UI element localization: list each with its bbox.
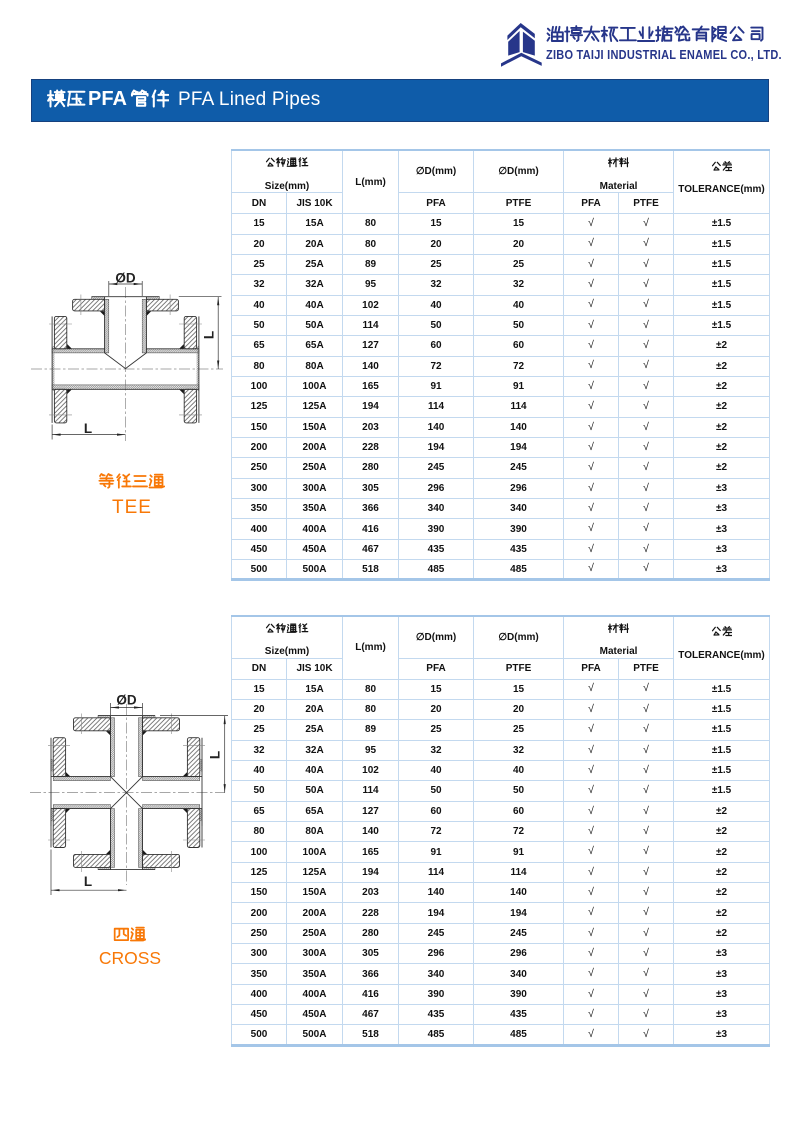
- svg-text:ØD: ØD: [116, 693, 137, 708]
- svg-text:L: L: [202, 331, 217, 339]
- svg-text:L: L: [208, 751, 223, 759]
- svg-text:ØD: ØD: [115, 271, 136, 286]
- svg-text:L: L: [84, 874, 92, 889]
- svg-text:L: L: [84, 421, 92, 436]
